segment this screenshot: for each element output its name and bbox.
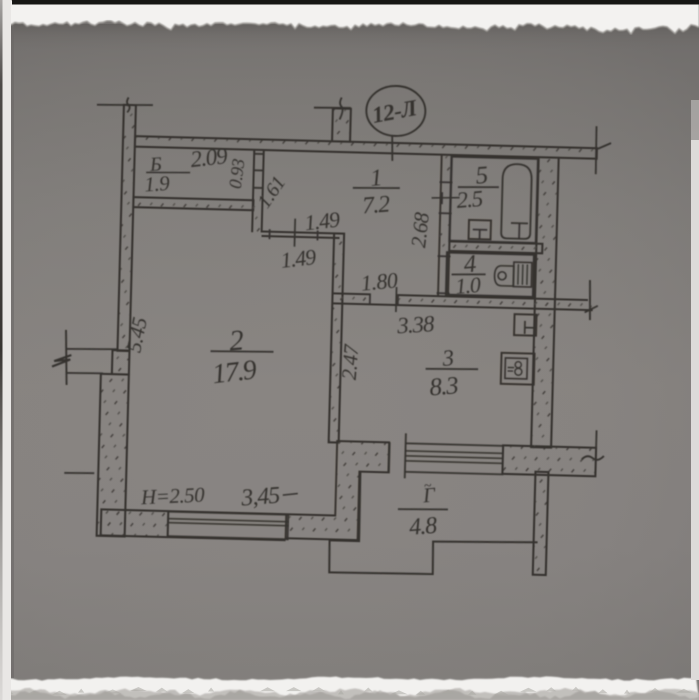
svg-text:1.49: 1.49	[279, 244, 317, 273]
svg-text:1.49: 1.49	[303, 207, 341, 236]
svg-text:2.5: 2.5	[455, 186, 483, 213]
svg-text:0.93: 0.93	[225, 157, 249, 189]
svg-text:3: 3	[441, 345, 455, 371]
svg-text:1.80: 1.80	[360, 267, 399, 295]
svg-text:3.38: 3.38	[395, 311, 435, 338]
svg-text:17.9: 17.9	[211, 354, 259, 390]
svg-text:1.9: 1.9	[144, 171, 171, 197]
svg-text:2: 2	[228, 324, 245, 357]
svg-text:Н=2.50: Н=2.50	[140, 483, 206, 510]
svg-text:8.3: 8.3	[428, 372, 459, 401]
svg-text:2.68: 2.68	[406, 211, 434, 249]
svg-text:7.2: 7.2	[361, 191, 391, 219]
svg-text:2.47: 2.47	[337, 342, 364, 381]
svg-text:1.0: 1.0	[454, 272, 481, 299]
svg-text:3,45: 3,45	[239, 483, 281, 512]
svg-text:4.8: 4.8	[408, 513, 438, 541]
svg-text:2.09: 2.09	[189, 143, 229, 172]
